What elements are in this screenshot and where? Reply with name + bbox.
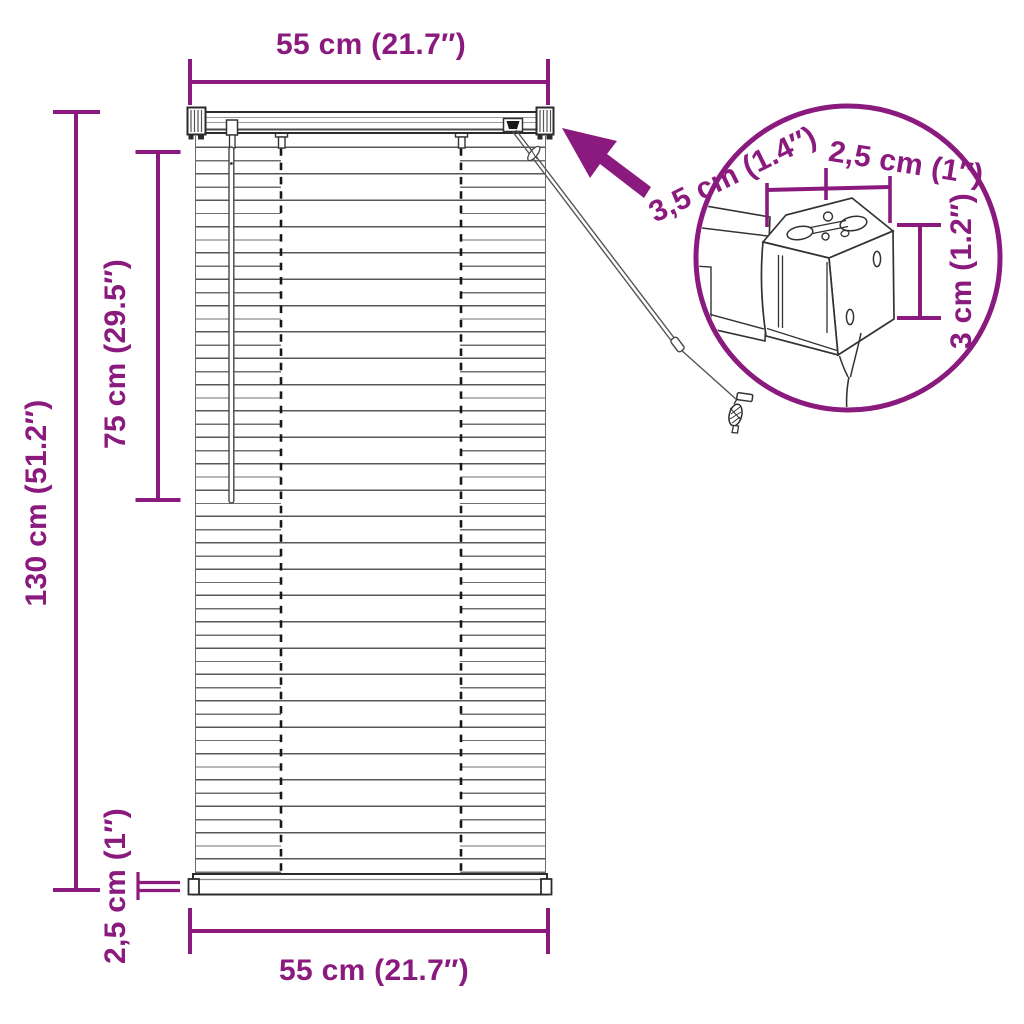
tilt-wand	[227, 120, 238, 503]
dim-top-width-label: 55 cm (21.7″)	[276, 28, 466, 62]
dim-total-height-label: 130 cm (51.2″)	[20, 399, 54, 606]
dimension-total-height-lines	[53, 112, 100, 890]
callout-arrow-icon	[562, 128, 651, 198]
dim-bottom-rail-label: 2,5 cm (1″)	[99, 808, 133, 964]
dimension-upper-height-lines	[136, 152, 181, 500]
bottom-rail	[189, 874, 552, 895]
dimension-top-width-lines	[190, 59, 548, 105]
headrail-end-bracket-left	[188, 108, 206, 140]
headrail-end-bracket-right	[537, 108, 554, 140]
headrail-detail-drawing	[694, 198, 894, 413]
cord-bead	[670, 336, 685, 353]
dim-detail-height-label: 3 cm (1.2″)	[945, 193, 979, 349]
dim-upper-height-label: 75 cm (29.5″)	[99, 259, 133, 449]
blind-dimension-diagram: 55 cm (21.7″) 130 cm (51.2″) 75 cm (29.5…	[0, 0, 1024, 1024]
dimension-detail-height-lines	[897, 225, 941, 318]
dim-bottom-width-label: 55 cm (21.7″)	[279, 954, 469, 988]
cord-lock	[504, 119, 523, 132]
cord-tassel	[727, 393, 753, 433]
dimension-bottom-width-lines	[190, 908, 548, 954]
ladder-cords	[281, 134, 461, 873]
blind-headrail	[205, 112, 537, 133]
dimension-bottom-rail-lines	[138, 872, 180, 900]
